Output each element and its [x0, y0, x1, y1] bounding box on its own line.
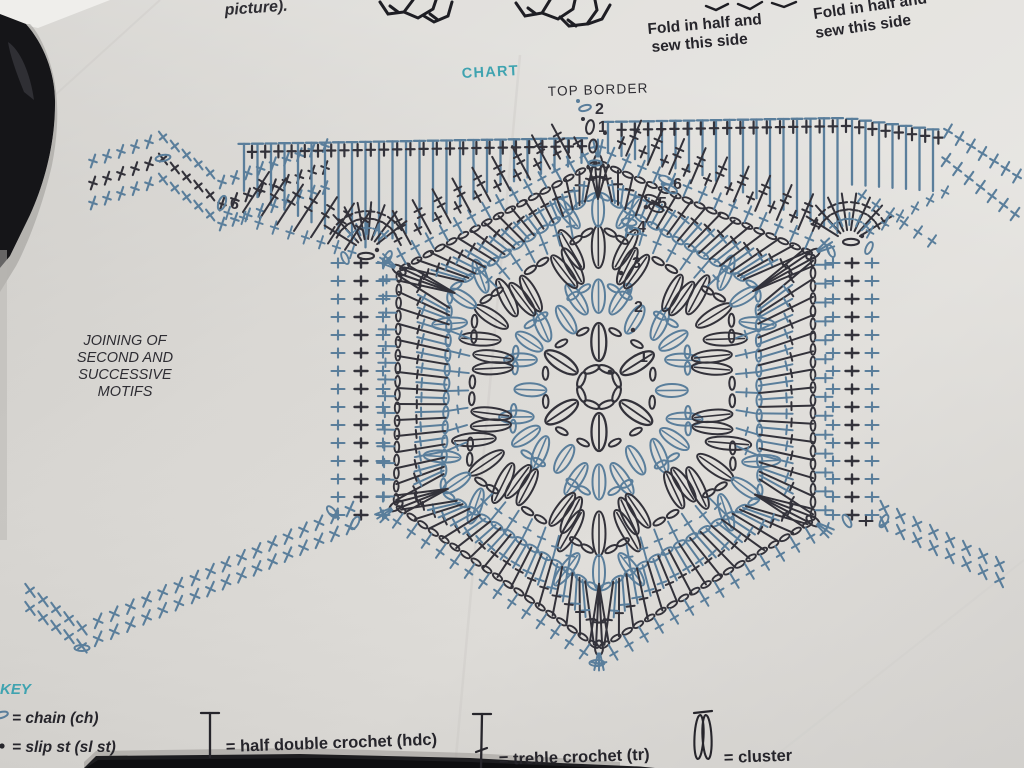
svg-text:SECOND AND: SECOND AND [77, 350, 173, 366]
svg-text:SUCCESSIVE: SUCCESSIVE [78, 367, 172, 383]
svg-text:KEY: KEY [0, 681, 33, 698]
svg-text:1: 1 [598, 119, 607, 136]
svg-text:3: 3 [632, 255, 641, 272]
svg-text:2: 2 [595, 101, 604, 118]
svg-text:= chain (ch): = chain (ch) [12, 710, 99, 727]
svg-text:CHART: CHART [461, 63, 519, 82]
svg-text:MOTIFS: MOTIFS [98, 384, 153, 400]
svg-text:1: 1 [639, 349, 648, 366]
svg-text:= slip st (sl st): = slip st (sl st) [12, 739, 116, 756]
svg-text:2: 2 [634, 299, 643, 316]
svg-text:6: 6 [230, 196, 239, 213]
svg-text:= cluster: = cluster [724, 747, 793, 767]
svg-text:JOINING OF: JOINING OF [83, 333, 168, 349]
